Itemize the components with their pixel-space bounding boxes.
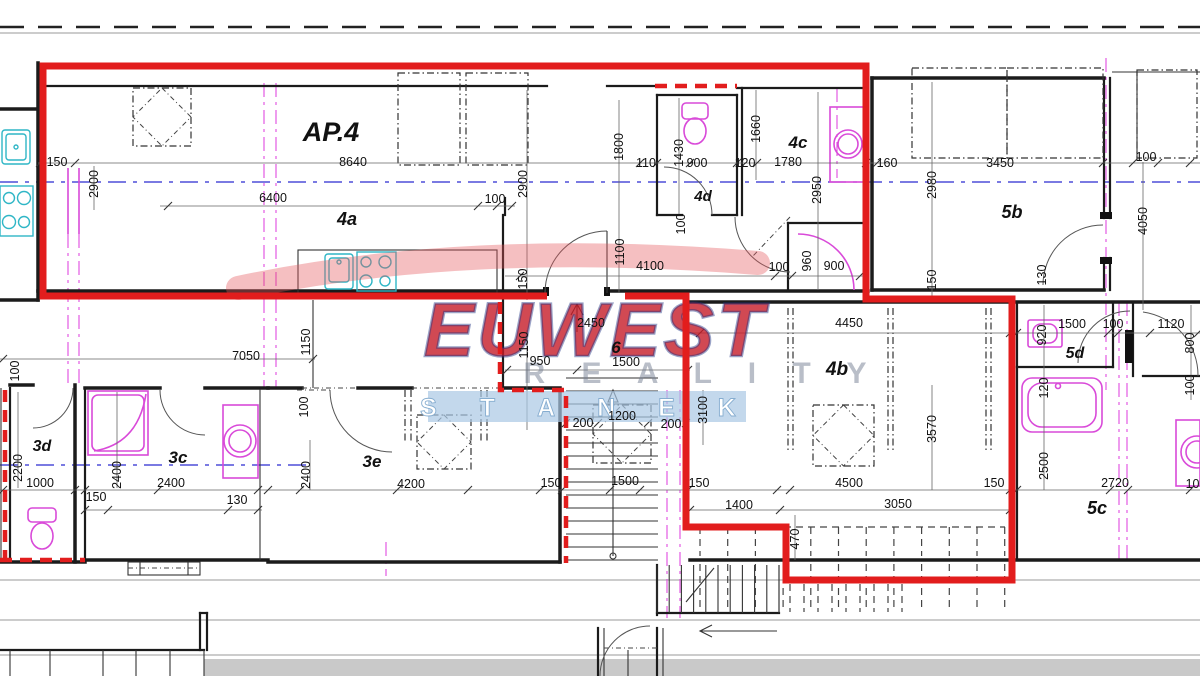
dimension-label: 200 [661,417,682,431]
dimension-label: 2720 [1101,476,1129,490]
dimension-label: 2400 [299,461,313,489]
dimension-label: 920 [1035,325,1049,346]
dimension-label: 160 [877,156,898,170]
dimension-label: 6400 [259,191,287,205]
dimension-label: 1500 [1058,317,1086,331]
dimension-label: 1200 [608,409,636,423]
room-label: 5c [1087,498,1107,518]
gray-band [204,659,1200,676]
dimension-label: 2950 [810,176,824,204]
room-label: 4b [825,359,849,380]
dimension-label: 800 [1183,333,1197,354]
dimension-label: 150 [516,269,530,290]
dimension-label: 2200 [11,454,25,482]
dimension-label: 900 [824,259,845,273]
room-label: 3e [363,452,382,471]
floor-plan-drawing: EUWEST R E A L I T Y S T A N E K 1508640… [0,0,1200,676]
dimension-label: 1500 [612,355,640,369]
dimension-label: 4450 [835,316,863,330]
dimension-label: 1120 [1158,317,1185,331]
dimension-label: 110 [636,156,656,170]
dimension-label: 950 [530,354,551,368]
dimension-label: 100 [8,361,22,382]
dimension-label: 100 [297,397,311,418]
dimension-label: 130 [1035,265,1049,286]
dimension-label: 3570 [925,415,939,443]
dimension-label: 2500 [1037,452,1051,480]
dimension-label: 1430 [672,139,686,167]
dimension-label: 120 [1037,378,1051,399]
dimension-label: 2450 [577,316,605,330]
dimension-label: 7050 [232,349,260,363]
dimension-label: 200 [573,416,594,430]
dimension-label: 900 [687,156,708,170]
dimension-label: 2900 [516,170,530,198]
dimension-label: 1100 [613,239,627,266]
dimension-label: 120 [735,156,756,170]
room-label: 5b [1001,202,1022,222]
room-label: AP.4 [302,117,360,147]
dimension-label: 3050 [884,497,912,511]
dimension-label: 8640 [339,155,367,169]
dimension-label: 100 [674,214,688,235]
dimension-label: 1400 [725,498,753,512]
dimension-label: 2900 [87,170,101,198]
dimension-label: 4500 [835,476,863,490]
dimension-label: 100 [769,260,790,274]
dimension-label: 100 [485,192,506,206]
dimension-label: 4100 [636,259,664,273]
dimension-label: 2980 [925,171,939,199]
dimension-label: 960 [800,251,814,272]
dimension-label: 1150 [299,329,313,356]
dimension-label: 150 [47,155,68,169]
dimension-label: 1780 [774,155,802,169]
dimension-label: 100 [1183,375,1197,396]
room-label: 5d [1066,345,1086,362]
dimension-label: 150 [925,270,939,291]
dimension-label: 1800 [612,133,626,161]
dimension-label: 130 [227,493,248,507]
dimension-label: 150 [689,476,710,490]
dimension-label: 100 [1103,317,1124,331]
dimension-label: 1660 [749,115,763,143]
dimension-label: 150 [86,490,107,504]
room-label: 4a [336,209,357,229]
dimension-label: 1000 [26,476,54,490]
dimension-label: 150 [541,476,562,490]
dimension-label: 100 [1186,477,1200,491]
dimension-label: 2400 [157,476,185,490]
dimension-label: 4050 [1136,207,1150,235]
dimension-label: 4200 [397,477,425,491]
room-label: 4c [788,133,808,152]
dimension-label: 3450 [986,156,1014,170]
floor-plan-page: EUWEST R E A L I T Y S T A N E K 1508640… [0,0,1200,676]
dimension-label: 1500 [611,474,639,488]
dimension-label: 100 [1136,150,1157,164]
dimension-label: 470 [788,529,802,550]
dimension-label: 2400 [110,461,124,489]
room-label: 4d [693,188,712,205]
dimension-label: 3100 [696,396,710,424]
room-label: 3d [33,438,53,455]
dimension-label: 150 [984,476,1005,490]
room-label: 6 [611,338,621,357]
room-label: 3c [169,448,188,467]
